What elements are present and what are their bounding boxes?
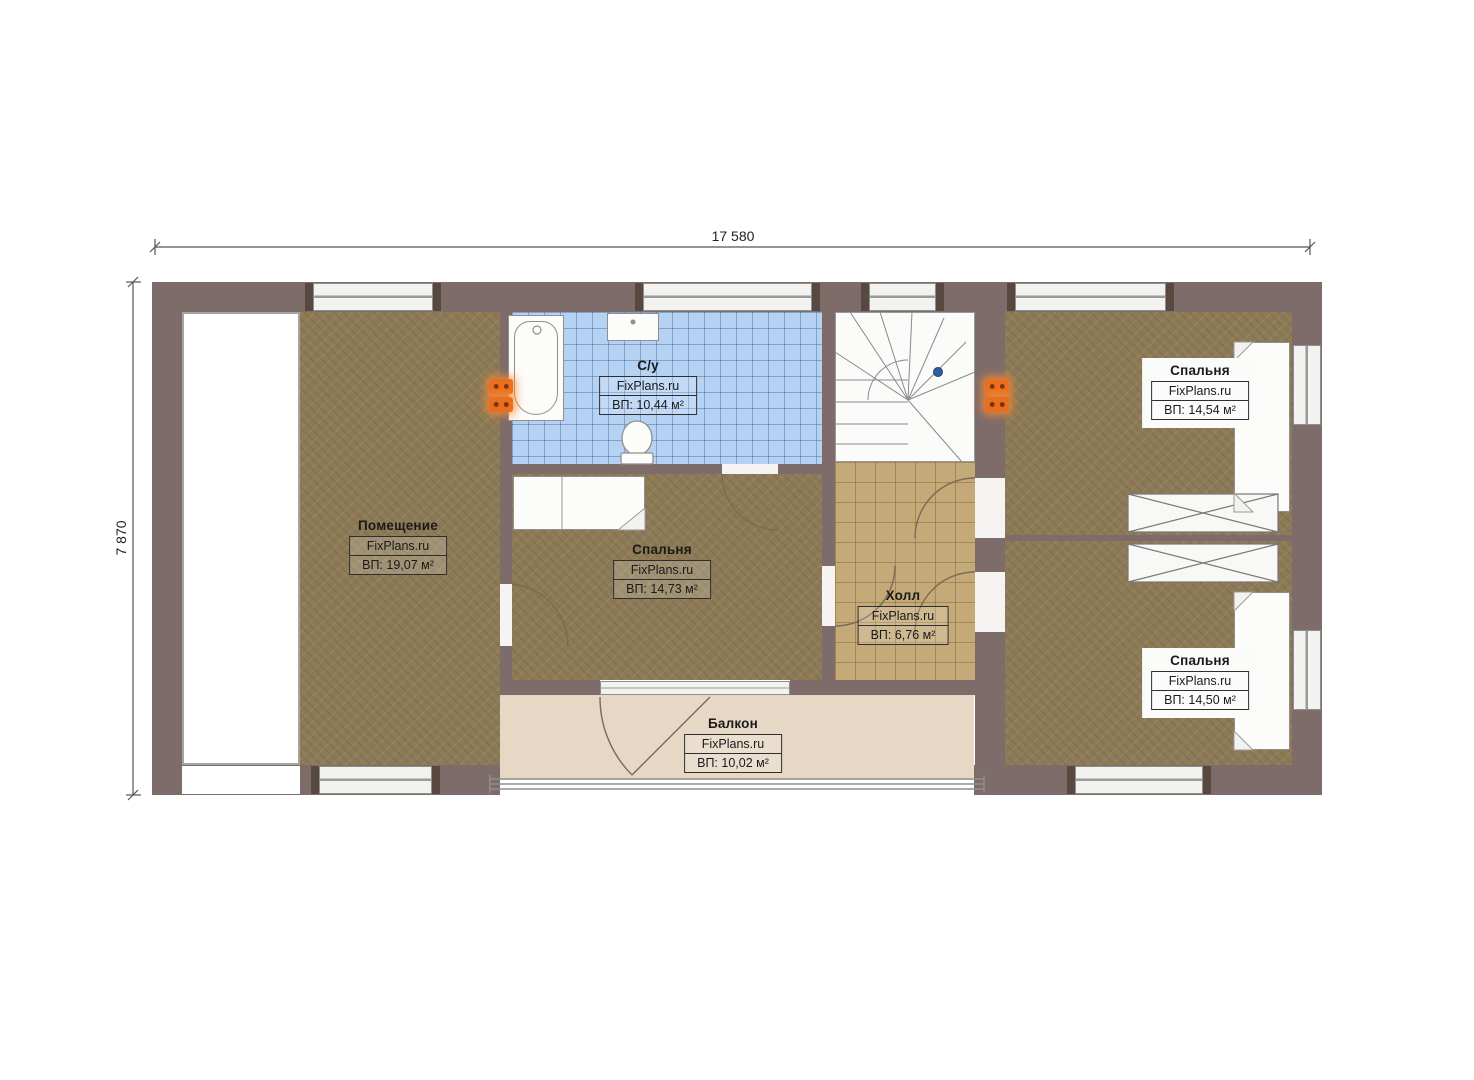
window (1015, 283, 1166, 311)
room-hall-floor (835, 462, 975, 680)
window-jamb (433, 283, 441, 311)
dimension-width-label: 17 580 (712, 228, 755, 244)
room-name: Балкон (708, 716, 758, 731)
sink (607, 313, 659, 341)
door-opening (500, 584, 512, 646)
dimension-height-label: 7 870 (113, 520, 129, 555)
door-opening (975, 478, 1005, 538)
wall-inner-d3 (975, 632, 1005, 765)
room-label-pomeshchenie: Помещение FixPlans.ru ВП: 19,07 м² (349, 518, 447, 575)
room-info-box: FixPlans.ru ВП: 14,50 м² (1151, 671, 1249, 710)
wall-inner-d1 (975, 312, 1005, 478)
room-area: ВП: 14,50 м² (1152, 691, 1248, 709)
bathtub (508, 315, 564, 421)
room-label-bedroom-mid: Спальня FixPlans.ru ВП: 14,73 м² (613, 542, 711, 599)
wall-inner-b1 (500, 464, 722, 474)
room-name: Спальня (632, 542, 692, 557)
window (643, 283, 812, 311)
wall-inner-e1 (512, 680, 600, 695)
wall-left (152, 282, 182, 795)
window-jamb (432, 766, 440, 794)
wall-inner-a2 (500, 646, 512, 695)
balcony-slider-opening (600, 681, 790, 695)
room-label-balcony: Балкон FixPlans.ru ВП: 10,02 м² (684, 716, 782, 773)
radiator (985, 379, 1009, 394)
room-area: ВП: 10,44 м² (600, 396, 696, 414)
room-label-bedroom-top-right: Спальня FixPlans.ru ВП: 14,54 м² (1142, 358, 1258, 428)
room-info-box: FixPlans.ru ВП: 10,44 м² (599, 376, 697, 415)
window-jamb (812, 283, 820, 311)
room-brand: FixPlans.ru (1152, 672, 1248, 691)
room-area: ВП: 14,54 м² (1152, 401, 1248, 419)
window (1293, 345, 1321, 425)
window-jamb (861, 283, 869, 311)
window-jamb (936, 283, 944, 311)
window (869, 283, 936, 311)
room-label-bedroom-bottom-right: Спальня FixPlans.ru ВП: 14,50 м² (1142, 648, 1258, 718)
window (313, 283, 433, 311)
staircase-area (835, 312, 975, 462)
bed (513, 476, 645, 530)
window-jamb (1203, 766, 1211, 794)
window-jamb (311, 766, 319, 794)
room-info-box: FixPlans.ru ВП: 19,07 м² (349, 536, 447, 575)
radiator (489, 397, 513, 412)
room-brand: FixPlans.ru (1152, 382, 1248, 401)
room-info-box: FixPlans.ru ВП: 10,02 м² (684, 734, 782, 773)
room-info-box: FixPlans.ru ВП: 14,73 м² (613, 560, 711, 599)
room-area: ВП: 19,07 м² (350, 556, 446, 574)
room-label-hall: Холл FixPlans.ru ВП: 6,76 м² (858, 588, 949, 645)
window (1075, 766, 1203, 794)
window-jamb (635, 283, 643, 311)
room-brand: FixPlans.ru (350, 537, 446, 556)
room-name: Помещение (358, 518, 438, 533)
room-name: Спальня (1170, 363, 1230, 378)
window (1293, 630, 1321, 710)
wall-bedrooms-divider (1005, 535, 1292, 541)
window-jamb (1067, 766, 1075, 794)
room-name: С/у (637, 358, 659, 373)
wall-inner-c1 (822, 312, 835, 566)
room-brand: FixPlans.ru (600, 377, 696, 396)
bathtub-basin (514, 321, 558, 415)
room-label-bathroom: С/у FixPlans.ru ВП: 10,44 м² (599, 358, 697, 415)
room-brand: FixPlans.ru (859, 607, 948, 626)
void-area (182, 312, 300, 765)
door-opening (975, 572, 1005, 632)
room-area: ВП: 6,76 м² (859, 626, 948, 644)
wall-inner-d2 (975, 538, 1005, 572)
floor-plan-page: 17 580 7 870 (0, 0, 1474, 1080)
door-opening (822, 566, 835, 626)
room-name: Холл (886, 588, 921, 603)
room-info-box: FixPlans.ru ВП: 6,76 м² (858, 606, 949, 645)
room-area: ВП: 10,02 м² (685, 754, 781, 772)
room-name: Спальня (1170, 653, 1230, 668)
door-opening (722, 464, 778, 474)
room-brand: FixPlans.ru (614, 561, 710, 580)
room-brand: FixPlans.ru (685, 735, 781, 754)
window-jamb (305, 283, 313, 311)
room-info-box: FixPlans.ru ВП: 14,54 м² (1151, 381, 1249, 420)
room-area: ВП: 14,73 м² (614, 580, 710, 598)
window-jamb (1166, 283, 1174, 311)
radiator (985, 397, 1009, 412)
wall-inner-e2 (790, 680, 975, 695)
window (319, 766, 432, 794)
radiator (489, 379, 513, 394)
garage-opening (182, 766, 300, 794)
window-jamb (1007, 283, 1015, 311)
